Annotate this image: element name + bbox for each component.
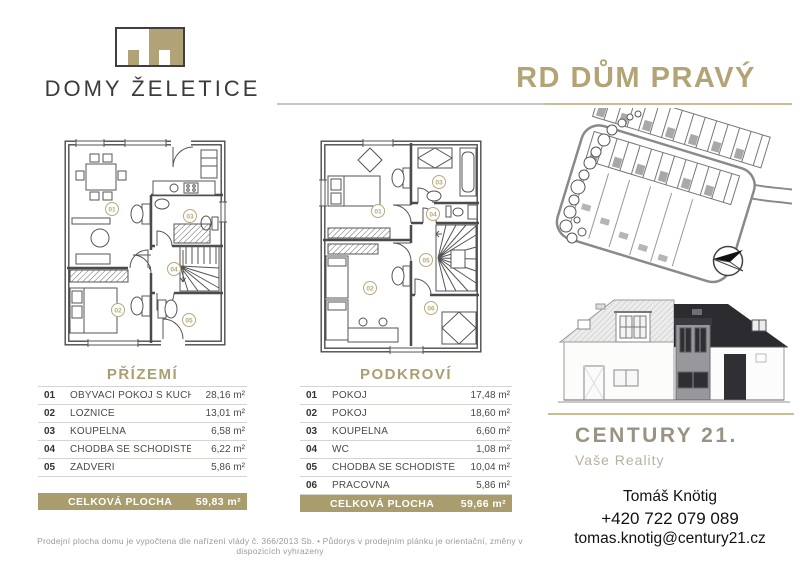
agent-phone: +420 722 079 089 (545, 508, 795, 529)
ground-floor-rows: 01 OBÝVACÍ POKOJ S KUCHYNÍ 28,16 m² 02 L… (38, 386, 247, 477)
elevation-drawing (556, 292, 792, 410)
room-area: 6,60 m² (456, 426, 512, 437)
svg-text:04: 04 (429, 212, 437, 219)
agent-email: tomas.knotig@century21.cz (545, 529, 795, 549)
table-row: 04 WC 1,08 m² (300, 441, 512, 459)
total-label: CELKOVÁ PLOCHA (38, 496, 196, 508)
flyer-page: DOMY ŽELETICE RD DŮM PRAVÝ (0, 0, 800, 566)
total-area-bar: CELKOVÁ PLOCHA 59,83 m² (38, 493, 247, 510)
brand-tagline: Vaše Reality (575, 453, 738, 467)
header-divider-tan (545, 103, 792, 105)
left-house (560, 300, 674, 400)
developer-logo-icon (115, 27, 185, 67)
attic-floor-plan: 01 02 03 04 05 06 (318, 138, 484, 355)
svg-text:05: 05 (185, 318, 193, 325)
table-row: 03 KOUPELNA 6,60 m² (300, 423, 512, 441)
ground-floor-table: PŘÍZEMÍ 01 OBÝVACÍ POKOJ S KUCHYNÍ 28,16… (38, 366, 247, 510)
room-label: 02 (364, 282, 377, 295)
room-area: 6,58 m² (191, 426, 247, 437)
room-area: 10,04 m² (456, 462, 512, 473)
total-value: 59,66 m² (461, 498, 512, 510)
attic-table: PODKROVÍ 01 POKOJ 17,48 m² 02 POKOJ 18,6… (300, 366, 512, 512)
brand-block: CENTURY 21. Vaše Reality (575, 425, 738, 467)
room-name: POKOJ (332, 390, 456, 401)
garden-plots (566, 167, 692, 268)
svg-text:03: 03 (186, 214, 194, 221)
room-name: POKOJ (332, 408, 456, 419)
brand-name: CENTURY 21. (575, 425, 738, 446)
page-title: RD DŮM PRAVÝ (480, 62, 792, 95)
room-area: 18,60 m² (456, 408, 512, 419)
room-number: 04 (300, 444, 332, 455)
room-area: 28,16 m² (191, 390, 247, 401)
room-number: 01 (300, 390, 332, 401)
table-row: 02 LOŽNICE 13,01 m² (38, 405, 247, 423)
room-area: 6,22 m² (191, 444, 247, 455)
table-row: 01 OBÝVACÍ POKOJ S KUCHYNÍ 28,16 m² (38, 387, 247, 405)
svg-text:04: 04 (170, 267, 178, 274)
header-divider-gray (277, 103, 545, 105)
section-divider (548, 413, 794, 415)
room-name: KOUPELNA (332, 426, 456, 437)
site-plan (548, 108, 792, 290)
room-number: 01 (38, 390, 70, 401)
room-name: CHODBA SE SCHODIŠTĚM (332, 462, 456, 473)
ground-floor-title: PŘÍZEMÍ (38, 366, 247, 383)
agent-name: Tomáš Knötig (545, 487, 795, 508)
room-name: OBÝVACÍ POKOJ S KUCHYNÍ (70, 390, 191, 401)
room-number: 05 (300, 462, 332, 473)
attic-rows: 01 POKOJ 17,48 m² 02 POKOJ 18,60 m² 03 K… (300, 386, 512, 495)
svg-text:03: 03 (435, 180, 443, 187)
table-row: 05 CHODBA SE SCHODIŠTĚM 10,04 m² (300, 459, 512, 477)
agent-contact: Tomáš Knötig +420 722 079 089 tomas.knot… (545, 487, 795, 549)
logo-chimney-right (159, 50, 170, 65)
table-row: 03 KOUPELNA 6,58 m² (38, 423, 247, 441)
room-name: PRACOVNA (332, 480, 456, 491)
total-area-bar: CELKOVÁ PLOCHA 59,66 m² (300, 495, 512, 512)
room-number: 02 (300, 408, 332, 419)
right-house-highlighted (674, 304, 788, 400)
room-label: 03 (433, 176, 446, 189)
attic-title: PODKROVÍ (300, 366, 512, 383)
room-label: 03 (184, 210, 197, 223)
room-label: 02 (112, 304, 125, 317)
room-number: 05 (38, 462, 70, 473)
room-area: 1,08 m² (456, 444, 512, 455)
svg-text:06: 06 (427, 306, 435, 313)
room-label: 04 (427, 208, 440, 221)
svg-text:01: 01 (108, 207, 116, 214)
compass-icon (713, 247, 743, 276)
room-name: WC (332, 444, 456, 455)
room-label: 01 (372, 205, 385, 218)
room-number: 03 (300, 426, 332, 437)
total-value: 59,83 m² (196, 496, 247, 508)
room-area: 5,86 m² (456, 480, 512, 491)
room-label: 01 (106, 203, 119, 216)
room-name: KOUPELNA (70, 426, 191, 437)
room-number: 02 (38, 408, 70, 419)
table-row: 05 ZÁDVEŘÍ 5,86 m² (38, 459, 247, 477)
room-label: 05 (183, 314, 196, 327)
svg-text:02: 02 (366, 286, 374, 293)
access-road (752, 177, 792, 212)
room-name: ZÁDVEŘÍ (70, 462, 191, 473)
room-area: 17,48 m² (456, 390, 512, 401)
svg-text:05: 05 (422, 258, 430, 265)
room-label: 04 (168, 263, 181, 276)
room-area: 13,01 m² (191, 408, 247, 419)
ground-floor-plan: 01 02 03 04 05 (62, 138, 228, 353)
svg-text:02: 02 (114, 308, 122, 315)
total-label: CELKOVÁ PLOCHA (300, 498, 461, 510)
room-name: CHODBA SE SCHODIŠTĚM (70, 444, 191, 455)
developer-logo-text: DOMY ŽELETICE (30, 76, 275, 102)
svg-text:01: 01 (374, 209, 382, 216)
table-row: 02 POKOJ 18,60 m² (300, 405, 512, 423)
room-number: 06 (300, 480, 332, 491)
table-row: 06 PRACOVNA 5,86 m² (300, 477, 512, 495)
room-label: 06 (425, 302, 438, 315)
logo-chimney-left (128, 50, 139, 65)
room-number: 03 (38, 426, 70, 437)
disclaimer-text: Prodejní plocha domu je vypočtena dle na… (28, 536, 532, 556)
room-area: 5,86 m² (191, 462, 247, 473)
room-label: 05 (420, 254, 433, 267)
table-row: 04 CHODBA SE SCHODIŠTĚM 6,22 m² (38, 441, 247, 459)
room-name: LOŽNICE (70, 408, 191, 419)
room-number: 04 (38, 444, 70, 455)
table-row: 01 POKOJ 17,48 m² (300, 387, 512, 405)
